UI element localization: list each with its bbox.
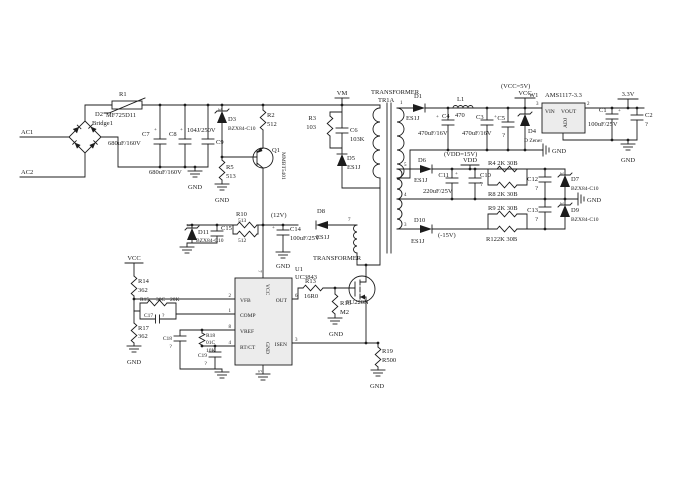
ground-symbol [180, 247, 194, 253]
net-label-vcc-divider: VCC [127, 255, 140, 262]
svg-text:?: ? [645, 121, 648, 128]
resistor-r2: R2 512 [260, 110, 277, 130]
resistor-r16: R16 M2 [332, 294, 351, 316]
svg-text:D3: D3 [228, 116, 236, 123]
svg-text:362: 362 [138, 287, 148, 294]
transformer-label-2: TRANSFORMER [313, 255, 362, 262]
svg-text:1: 1 [229, 309, 232, 314]
flyback-power-supply-schematic: AC1 AC2 D2 Bridge1 R1 MF725D11 C7 + 680u… [0, 0, 690, 487]
svg-text:3.3V: 3.3V [622, 91, 635, 98]
junction-dots [133, 104, 639, 348]
net-label-vdd: (VDD=15V) VDD [444, 151, 477, 164]
capacitor-c18: C18 ? [163, 336, 186, 350]
svg-text:R2: R2 [267, 112, 275, 119]
svg-text:C18: C18 [163, 336, 172, 342]
svg-text:+: + [272, 226, 275, 231]
svg-text:BZX84-C10: BZX84-C10 [571, 217, 599, 223]
svg-text:D11: D11 [198, 229, 209, 236]
svg-text:U1: U1 [295, 266, 303, 273]
schematic-canvas: AC1 AC2 D2 Bridge1 R1 MF725D11 C7 + 680u… [0, 0, 690, 487]
svg-text:VOUT: VOUT [561, 109, 577, 115]
svg-text:3: 3 [185, 224, 190, 227]
svg-text:470uF/16V: 470uF/16V [418, 130, 448, 137]
svg-text:ISEN: ISEN [275, 342, 287, 348]
svg-text:513: 513 [226, 173, 236, 180]
resistor-r14: R14 362 [131, 276, 149, 296]
svg-text:?: ? [535, 216, 538, 223]
svg-text:VM: VM [337, 90, 348, 97]
svg-text:513: 513 [238, 218, 247, 224]
svg-text:7: 7 [256, 270, 261, 273]
svg-text:C15: C15 [221, 225, 232, 232]
svg-text:5: 5 [256, 370, 261, 373]
capacitor-c6: C6 103K [336, 127, 365, 143]
bridge-part: Bridge1 [92, 120, 113, 127]
transformer-label: TRANSFORMER [371, 89, 420, 96]
svg-text:BZX84-C10: BZX84-C10 [571, 186, 599, 192]
svg-text:C17: C17 [144, 313, 153, 319]
svg-text:L1: L1 [457, 96, 464, 103]
svg-text:MMBT5401: MMBT5401 [280, 152, 286, 180]
diode-d5: D5 ES1J [337, 154, 361, 171]
svg-text:3: 3 [295, 338, 298, 343]
svg-text:R500: R500 [382, 357, 396, 364]
svg-text:C19: C19 [198, 353, 207, 359]
ground-symbol: GND [370, 370, 385, 390]
svg-text:GND: GND [264, 342, 270, 354]
svg-text:W1: W1 [529, 92, 538, 99]
svg-text:COMP: COMP [240, 313, 256, 319]
resistor-r17: R17 362 [131, 323, 149, 343]
svg-text:2: 2 [587, 102, 590, 107]
svg-text:220uF/25V: 220uF/25V [423, 188, 453, 195]
svg-text:C5: C5 [497, 115, 505, 122]
ac-input-labels: AC1 AC2 [21, 129, 33, 176]
svg-text:104J/250V: 104J/250V [187, 127, 216, 134]
svg-text:C6: C6 [350, 127, 358, 134]
ground-symbol: GND [621, 144, 635, 164]
svg-text:R4 2K 30B: R4 2K 30B [488, 160, 518, 167]
capacitor-c1: C1 + 100uF/25V [588, 107, 621, 128]
svg-text:470: 470 [455, 112, 465, 119]
net-label-vcc: (VCC=5V) VCC [501, 83, 532, 97]
capacitor-c15: C15 [211, 225, 232, 236]
svg-text:?: ? [162, 313, 165, 319]
svg-text:R18: R18 [206, 333, 215, 339]
svg-text:20K: 20K [170, 297, 180, 303]
ground-symbol: GND [188, 171, 202, 191]
svg-text:ES1J: ES1J [347, 164, 361, 171]
svg-text:R16: R16 [340, 300, 352, 307]
svg-text:362: 362 [138, 333, 148, 340]
zener-d3: D3 BZX84-C10 3 [215, 108, 256, 132]
diode-d1: D1 ES1J [406, 93, 425, 122]
ic-u1: U1 UC3843 VFB COMP VREF RT/CT OUT ISEN V… [229, 266, 318, 373]
svg-text:VCC: VCC [264, 284, 270, 296]
bridge-ref: D2 [95, 111, 103, 118]
svg-text:BZX84-C10: BZX84-C10 [228, 126, 256, 132]
svg-text:C4: C4 [442, 113, 450, 120]
ground-symbol: GND [215, 184, 229, 204]
svg-text:C10: C10 [480, 172, 491, 179]
ground-symbol: GND [276, 252, 290, 270]
svg-text:VCC: VCC [127, 255, 140, 262]
svg-text:C7: C7 [142, 131, 150, 138]
svg-text:470uF/16V: 470uF/16V [462, 130, 492, 137]
svg-text:D1: D1 [414, 93, 422, 100]
capacitor-c19: C19 ? [198, 352, 221, 367]
svg-text:(-15V): (-15V) [438, 232, 456, 239]
svg-text:VDD: VDD [463, 157, 477, 164]
svg-text:C3: C3 [476, 114, 484, 121]
svg-text:AMS1117-3.3: AMS1117-3.3 [545, 92, 582, 99]
svg-text:D9: D9 [571, 207, 579, 214]
diode-d10: D10 ES1J [411, 217, 432, 245]
svg-text:ES1J: ES1J [411, 238, 425, 245]
resistor-r10: R10 513 [236, 211, 257, 228]
svg-text:R19: R19 [382, 348, 393, 355]
capacitor-c17: C17 ? [144, 313, 165, 319]
svg-text:R8 2K 30B: R8 2K 30B [488, 191, 518, 198]
svg-text:VIN: VIN [545, 109, 555, 115]
svg-text:8: 8 [229, 325, 232, 330]
svg-text:R13: R13 [305, 278, 316, 285]
ground-symbol: GND [127, 346, 141, 366]
svg-text:GND: GND [370, 383, 384, 390]
svg-text:7: 7 [348, 218, 351, 223]
svg-text:R5: R5 [226, 164, 234, 171]
ground-symbol [256, 374, 270, 380]
svg-text:680uF/160V: 680uF/160V [149, 169, 182, 176]
svg-text:100uF/25V: 100uF/25V [588, 121, 618, 128]
diode-d8: D8 ES1J [316, 208, 330, 241]
svg-text:D Zener: D Zener [524, 138, 542, 144]
svg-text:C8: C8 [169, 131, 177, 138]
svg-text:ADJ: ADJ [563, 117, 569, 128]
svg-text:VREF: VREF [240, 329, 254, 335]
capacitor-c3: C3 + 470uF/16V [462, 114, 497, 137]
svg-text:GND: GND [587, 197, 601, 204]
svg-text:+: + [436, 115, 439, 120]
svg-text:M2: M2 [340, 309, 349, 316]
svg-text:R10: R10 [236, 211, 247, 218]
svg-text:1: 1 [400, 101, 403, 106]
svg-text:C13: C13 [527, 207, 538, 214]
inductor-l1: L1 470 [453, 96, 473, 119]
svg-text:RT/CT: RT/CT [240, 345, 256, 351]
svg-text:?: ? [170, 344, 173, 350]
svg-text:680uF/160V: 680uF/160V [108, 140, 141, 147]
resistor-r19: R19 R500 [375, 347, 396, 367]
r1-ref: R1 [119, 91, 127, 98]
svg-text:GND: GND [329, 331, 343, 338]
svg-text:4: 4 [404, 193, 407, 198]
resistor-r18: R18 01C 10K [199, 333, 215, 354]
svg-text:D7: D7 [571, 176, 580, 183]
svg-text:C2: C2 [645, 112, 653, 119]
svg-text:R122K 30B: R122K 30B [486, 236, 518, 243]
capacitor-c14: + C14 100uF/25V [272, 226, 320, 242]
svg-text:ES1J: ES1J [414, 177, 428, 184]
svg-text:?: ? [535, 185, 538, 192]
net-label-3v3: 3.3V [622, 91, 635, 98]
net-label-ac1: AC1 [21, 129, 33, 136]
svg-text:R9 2K 30B: R9 2K 30B [488, 205, 518, 212]
capacitor-c9: 104J/250V C9 [187, 127, 224, 146]
svg-text:R15: R15 [140, 297, 149, 303]
ground-symbol-side: GND [578, 193, 601, 205]
svg-text:C1: C1 [599, 107, 607, 114]
svg-text:GND: GND [276, 263, 290, 270]
capacitor-c13: C13 ? [527, 207, 551, 223]
svg-text:BZX84-C10: BZX84-C10 [196, 238, 224, 244]
svg-text:C9: C9 [216, 139, 224, 146]
svg-text:D8: D8 [317, 208, 325, 215]
diode-d6: D6 ES1J [414, 157, 432, 184]
resistor-r5: R5 513 [219, 160, 236, 180]
resistor-r13: R13 16R0 [303, 278, 323, 300]
capacitor-c5: C5 ? [497, 115, 514, 139]
svg-text:OUT: OUT [276, 298, 288, 304]
svg-text:3: 3 [404, 223, 407, 228]
svg-text:512: 512 [267, 121, 277, 128]
svg-text:?: ? [205, 361, 208, 367]
svg-text:ES1J: ES1J [406, 115, 420, 122]
capacitor-c4: + C4 470uF/16V [418, 113, 454, 137]
svg-text:+: + [618, 109, 621, 114]
svg-text:(VCC=5V): (VCC=5V) [501, 83, 530, 90]
zener-d4: D4 D Zener [518, 112, 542, 144]
net-label-ac2: AC2 [21, 169, 33, 176]
svg-text:+: + [455, 172, 458, 177]
svg-text:30C: 30C [156, 297, 166, 303]
svg-text:D10: D10 [414, 217, 425, 224]
svg-text:103: 103 [306, 124, 316, 131]
svg-text:C11: C11 [438, 172, 449, 179]
svg-text:512: 512 [238, 238, 247, 244]
svg-text:2: 2 [229, 294, 232, 299]
zener-d7: D7 BZX84-C10 3 [558, 172, 599, 192]
resistor-r9: R9 2K 30B [488, 205, 518, 217]
resistor-r3: R3 103 [306, 115, 333, 136]
net-label-vm: VM [335, 90, 349, 98]
svg-text:C12: C12 [527, 176, 538, 183]
capacitor-c11: C11 + 220uF/25V [423, 172, 458, 195]
transformer-ref: TR1A [378, 97, 395, 104]
svg-text:GND: GND [215, 197, 229, 204]
svg-text:D4: D4 [528, 128, 537, 135]
capacitor-c2: C2 ? [631, 112, 653, 128]
capacitor-c12: C12 ? [527, 176, 551, 192]
svg-text:10K: 10K [206, 348, 216, 354]
svg-text:5: 5 [404, 163, 407, 168]
svg-text:(12V): (12V) [271, 212, 287, 219]
svg-text:C14: C14 [290, 226, 302, 233]
svg-text:4: 4 [229, 341, 232, 346]
svg-text:?: ? [502, 132, 505, 139]
svg-text:R3: R3 [308, 115, 316, 122]
zener-d11: D11 BZX84-C10 3 [185, 224, 224, 244]
svg-text:GND: GND [127, 359, 141, 366]
svg-text:103K: 103K [350, 136, 365, 143]
svg-text:GND: GND [188, 184, 202, 191]
svg-text:R14: R14 [138, 278, 150, 285]
svg-text:R17: R17 [138, 325, 150, 332]
net-label-neg15: (-15V) [438, 232, 456, 239]
svg-text:ES1J: ES1J [316, 234, 330, 241]
svg-text:D6: D6 [418, 157, 427, 164]
svg-text:GND: GND [621, 157, 635, 164]
resistor-r11: 512 [237, 231, 257, 244]
capacitor-c7: C7 + 680uF/160V [108, 128, 166, 147]
net-label-12v: (12V) [271, 212, 287, 219]
regulator-w1: W1 AMS1117-3.3 VIN VOUT ADJ 3 2 [529, 92, 590, 133]
ground-symbol-side: GND [543, 144, 566, 156]
svg-text:+: + [154, 128, 157, 133]
resistor-r15: R15 30C 20K [140, 297, 180, 306]
svg-text:Q1: Q1 [272, 147, 280, 154]
r1-value: MF725D11 [106, 112, 136, 119]
svg-text:+: + [180, 128, 183, 133]
resistor-r4: R4 2K 30B [488, 160, 518, 172]
svg-text:3: 3 [536, 102, 539, 107]
svg-text:D5: D5 [347, 155, 355, 162]
ground-symbol: GND [328, 318, 343, 338]
svg-text:GND: GND [552, 148, 566, 155]
svg-text:VFB: VFB [240, 298, 251, 304]
svg-text:16R0: 16R0 [304, 293, 318, 300]
ground-symbol [215, 372, 229, 378]
svg-text:?: ? [480, 181, 483, 188]
